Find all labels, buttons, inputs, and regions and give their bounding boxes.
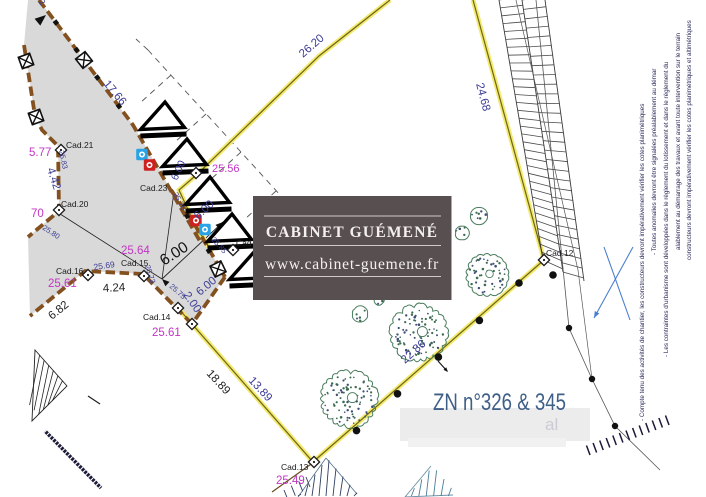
svg-text:25.61: 25.61 [152, 327, 181, 339]
svg-text:- Les contraintes d'urbanisme: - Les contraintes d'urbanisme sont dével… [663, 61, 670, 357]
svg-text:Cad: Cad [236, 238, 252, 248]
svg-text:ZN n°326 & 345: ZN n°326 & 345 [433, 389, 566, 416]
svg-text:- Compte tenu des activités de: - Compte tenu des activités de chantier,… [639, 104, 646, 421]
svg-text:www.cabinet-guemene.fr: www.cabinet-guemene.fr [265, 256, 439, 273]
svg-text:5.77: 5.77 [29, 147, 51, 159]
svg-text:Cad.21: Cad.21 [66, 140, 94, 150]
svg-text:- Toutes anomalies devront êtr: - Toutes anomalies devront être signalée… [651, 69, 658, 255]
svg-text:4.24: 4.24 [103, 282, 127, 295]
svg-text:Cad.12: Cad.12 [546, 248, 574, 258]
svg-text:25.64: 25.64 [121, 245, 150, 257]
svg-text:CABINET GUÉMENÉ: CABINET GUÉMENÉ [266, 224, 438, 241]
svg-text:70: 70 [31, 208, 44, 220]
svg-text:constructeurs devront impérati: constructeurs devront impérativement vér… [686, 20, 693, 260]
svg-text:alablement au démarrage des tr: alablement au démarrage des travaux et a… [675, 32, 682, 250]
svg-text:Cad.14: Cad.14 [143, 312, 171, 322]
svg-text:25.56: 25.56 [212, 163, 240, 175]
svg-text:25.61: 25.61 [48, 278, 77, 290]
svg-text:Cad.20: Cad.20 [61, 199, 89, 209]
svg-text:Cad.23: Cad.23 [140, 183, 168, 193]
svg-text:al: al [545, 415, 558, 434]
svg-text:25.49: 25.49 [276, 475, 305, 487]
svg-text:Cad.15: Cad.15 [121, 258, 149, 268]
svg-text:Cad.13: Cad.13 [281, 462, 309, 472]
svg-text:Cad.16: Cad.16 [56, 266, 84, 276]
